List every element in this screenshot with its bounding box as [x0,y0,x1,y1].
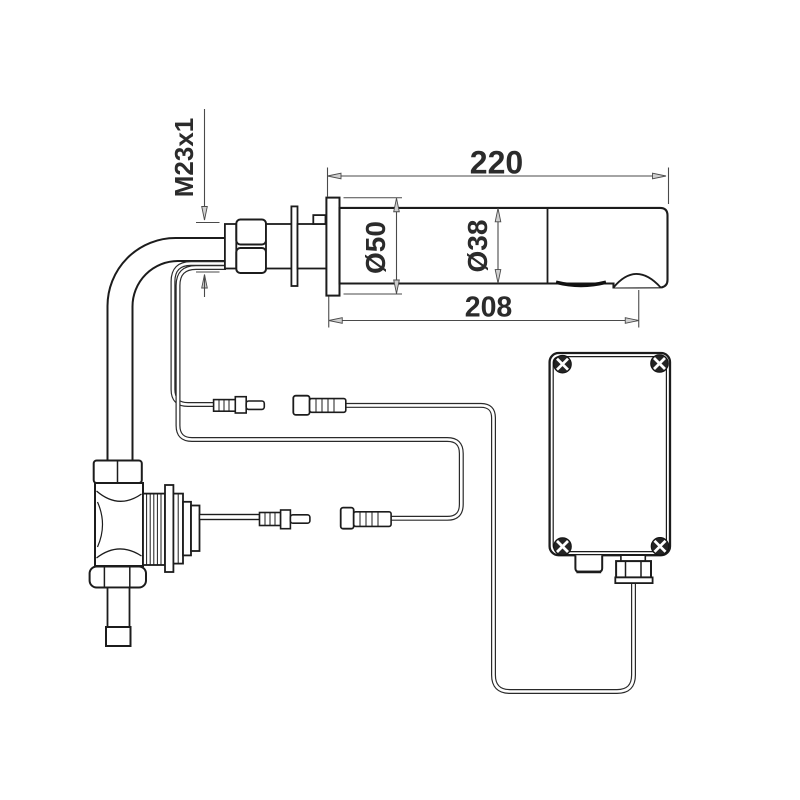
svg-text:Ø50: Ø50 [360,221,391,274]
svg-text:M23x1: M23x1 [169,118,199,198]
svg-text:Ø38: Ø38 [462,220,493,273]
svg-text:220: 220 [470,145,523,181]
svg-text:208: 208 [465,292,513,324]
